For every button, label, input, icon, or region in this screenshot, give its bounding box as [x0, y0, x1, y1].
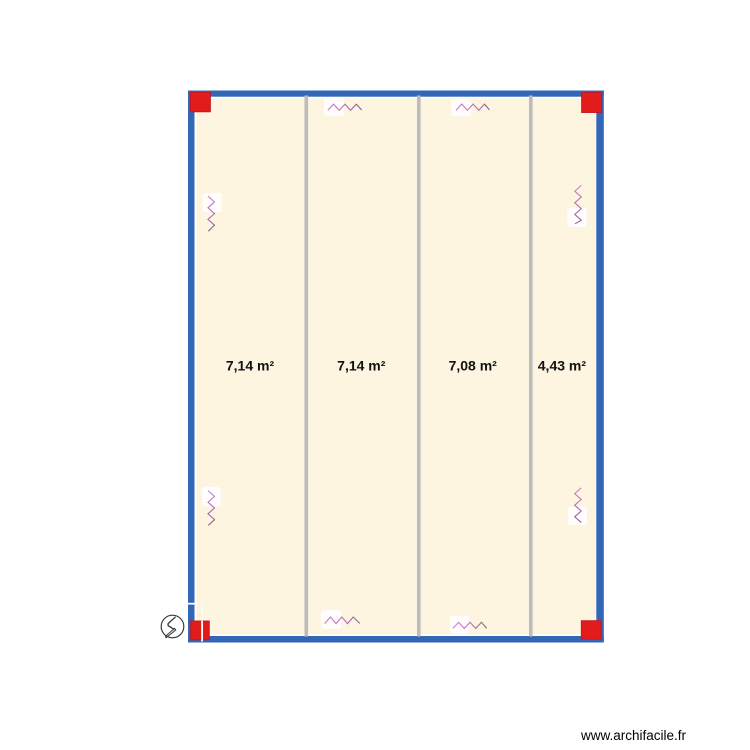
svg-text:7,08 m²: 7,08 m²: [449, 357, 498, 373]
svg-text:4,43 m²: 4,43 m²: [538, 357, 587, 373]
svg-text:www.archifacile.fr: www.archifacile.fr: [580, 728, 687, 743]
svg-text:7,14 m²: 7,14 m²: [337, 357, 386, 373]
svg-text:7,14 m²: 7,14 m²: [226, 357, 275, 373]
